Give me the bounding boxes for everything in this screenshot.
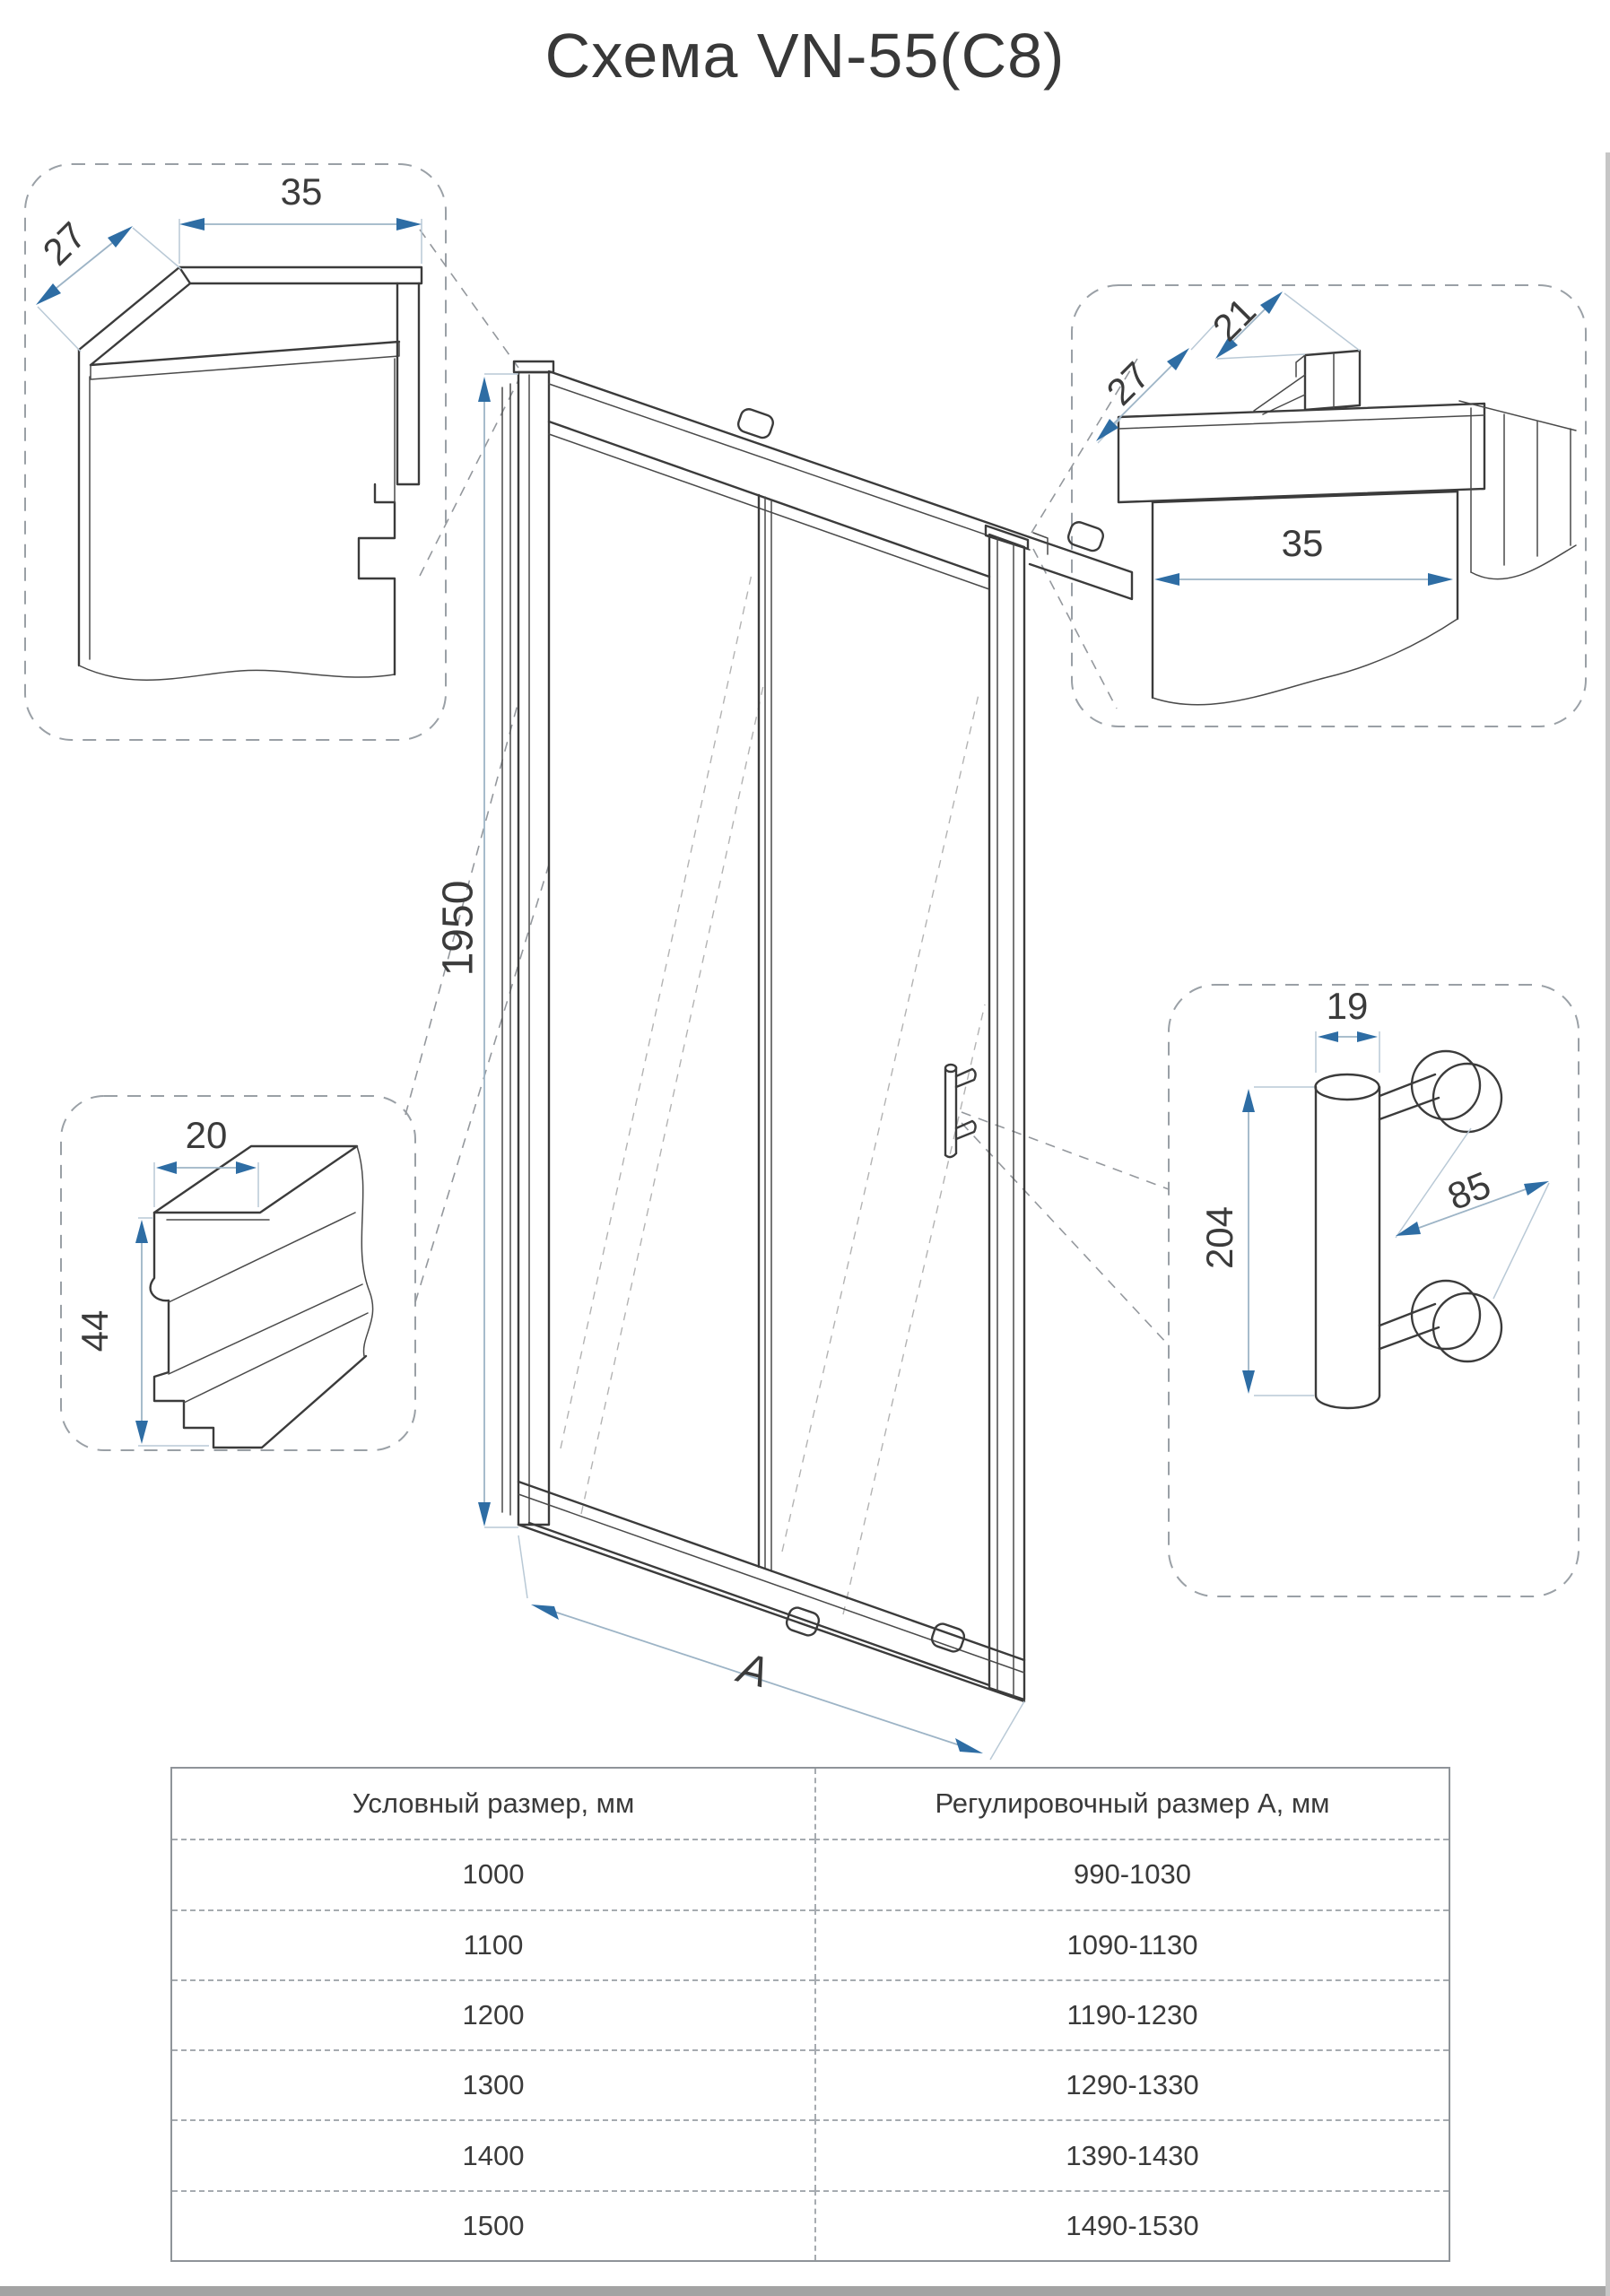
detail-wall-profile-right: 21 27 35 — [1096, 290, 1576, 705]
door-right-post — [989, 535, 1024, 1700]
page-edge-bottom — [0, 2286, 1610, 2296]
detail-wall-profile-left: 35 27 — [35, 170, 422, 680]
door-left-post — [518, 372, 549, 1525]
door-left-post-cap — [514, 361, 553, 372]
size-table: Условный размер, мм Регулировочный разме… — [170, 1767, 1450, 2262]
detail-box-bottom-rail — [61, 1096, 415, 1450]
dim-label: 20 — [186, 1114, 228, 1156]
dim-door-height: 1950 — [435, 374, 518, 1527]
table-header-nominal: Условный размер, мм — [172, 1769, 814, 1839]
table-cell: 1390-1430 — [814, 2119, 1449, 2189]
table-cell: 1300 — [172, 2049, 814, 2119]
page-edge-right — [1606, 152, 1610, 2296]
table-cell: 1500 — [172, 2190, 814, 2260]
dim-label: 35 — [281, 170, 323, 213]
detail-bottom-rail: 20 44 — [74, 1114, 373, 1448]
table-cell: 1090-1130 — [814, 1909, 1449, 1979]
table-cell: 1490-1530 — [814, 2190, 1449, 2260]
dim-label: 44 — [74, 1310, 116, 1352]
detail-box-wall-profile-right — [1072, 285, 1586, 726]
door-top-rail — [549, 371, 1030, 537]
dim-label: 204 — [1198, 1206, 1240, 1269]
door-handle — [945, 1065, 976, 1157]
bottom-roller-bracket — [785, 1605, 822, 1638]
dim-label: 85 — [1441, 1163, 1496, 1218]
detail-box-wall-profile-left — [25, 164, 446, 740]
dim-label: 21 — [1205, 290, 1264, 349]
door-width-label: A — [731, 1644, 773, 1698]
dim-label: 35 — [1282, 522, 1324, 564]
door-drawing: 1950 A — [435, 361, 1132, 1760]
detail-handle: 19 204 85 — [1198, 985, 1549, 1408]
door-height-label: 1950 — [435, 881, 483, 977]
table-cell: 1000 — [172, 1839, 814, 1909]
table-cell: 1100 — [172, 1909, 814, 1979]
schematic-drawing: 1950 A — [0, 0, 1610, 1767]
leader-lines — [405, 230, 1169, 1345]
table-header-adjustable: Регулировочный размер А, мм — [814, 1769, 1449, 1839]
table-cell: 1290-1330 — [814, 2049, 1449, 2119]
dim-label: 27 — [1099, 354, 1158, 413]
dim-label: 19 — [1327, 985, 1369, 1027]
table-cell: 990-1030 — [814, 1839, 1449, 1909]
detail-box-handle — [1169, 985, 1579, 1596]
schematic-page: Схема VN-55(C8) — [0, 0, 1610, 2296]
table-cell: 1190-1230 — [814, 1979, 1449, 2049]
table-cell: 1400 — [172, 2119, 814, 2189]
top-roller-bracket — [736, 407, 775, 440]
table-cell: 1200 — [172, 1979, 814, 2049]
